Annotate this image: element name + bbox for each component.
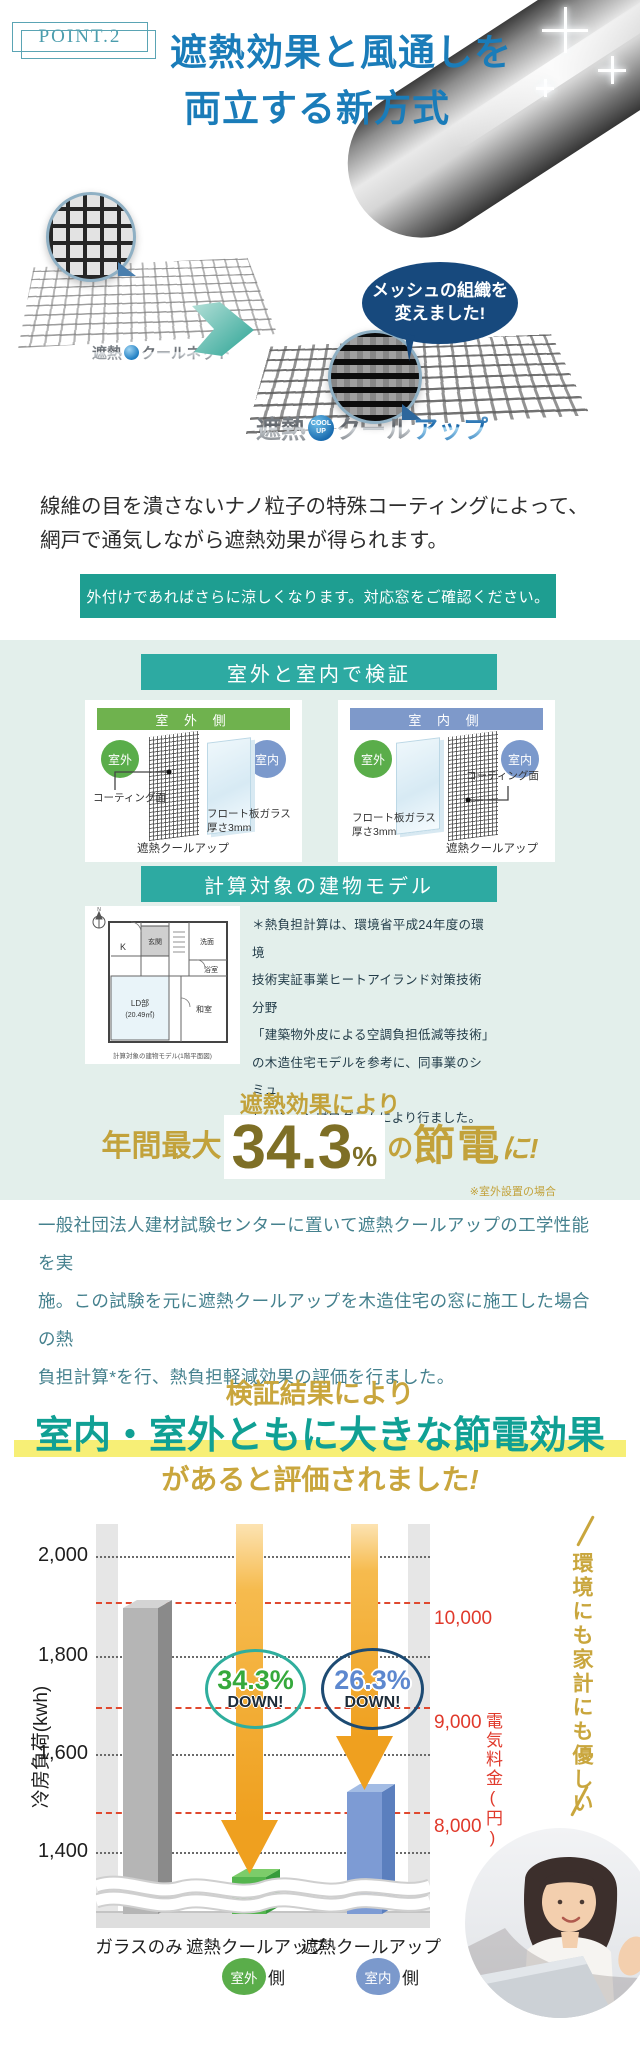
reduction-badge-outdoor: 34.3% DOWN! [205,1649,306,1729]
savings-value-box: 34.3 % [224,1115,386,1179]
coolup-logo-text-2: クール [336,410,411,446]
chart-floor [96,1912,430,1928]
compass-label: N [97,907,101,913]
room-genkan: 玄関 [148,937,162,946]
right-tick-10000: 10,000 [434,1608,492,1630]
coating-label: コーティング面 [93,792,166,806]
coolup-badge-icon: COOL UP [308,415,334,441]
notice-banner: 外付けであればさらに涼しくなります。対応窓をご確認ください。 [80,574,556,618]
transition-arrow-icon [190,300,256,358]
note-line: 「建築物外皮による空調負担低減等技術」 [252,1022,492,1050]
reduction-badge-indoor: 26.3% DOWN! [321,1648,424,1730]
glass-label: フロート板ガラス 厚さ3mm [207,808,291,835]
woman-photo [465,1828,640,2018]
coating-label: コーティング面 [466,770,539,784]
coolup-badge-line1: COOL [311,420,331,428]
droplet-icon [124,345,139,360]
conclusion-bang: ! [469,1464,478,1495]
outdoor-circle: 室外 [354,740,392,778]
savings-line: 年間最大 34.3 % の 節電 に! [0,1112,640,1179]
left-tick-1600: 1,600 [18,1742,88,1765]
room-yokushitsu: 浴室 [204,965,218,974]
verification-header: 室外と室内で検証 [141,654,497,690]
bubble-text-line1: メッシュの組織を [372,280,508,303]
indoor-badge: 室内 [356,1958,400,1995]
description-line: 施。この試験を元に遮熱クールアップを木造住宅の窓に施工した場合の熱 [38,1282,606,1358]
left-tick-1400: 1,400 [18,1840,88,1863]
promo-page: POINT.2 遮熱効果と風通しを 両立する新方式 遮熱 クールネット メッシュ… [0,0,640,2048]
product-label: 遮熱クールアップ [446,842,538,857]
savings-unit: % [352,1141,377,1179]
point-label: POINT.2 [39,26,122,48]
intro-line1: 線維の目を潰さないナノ粒子の特殊コーティングによって、 [40,490,612,524]
savings-value: 34.3 [232,1117,353,1179]
outdoor-badge-suffix: 側 [268,1964,285,1989]
right-tick-9000: 9,000 [434,1712,482,1734]
reduction-caption: DOWN! [345,1695,401,1712]
reduction-percent: 34.3% [217,1666,294,1694]
reduction-percent: 26.3% [334,1666,411,1694]
description-line: 一般社団法人建材試験センターに置いて遮熱クールアップの工学性能を実 [38,1206,606,1282]
left-tick-1800: 1,800 [18,1644,88,1667]
woman-illustration [465,1828,640,2018]
coolup-logo-text-3: アップ [413,410,488,446]
savings-note: ※室外設置の場合 [0,1183,556,1199]
right-axis-label: 電気料金(円) [480,1712,505,1849]
glass-label: フロート板ガラス 厚さ3mm [352,812,436,839]
coolup-logo: 遮熱 COOL UP クール アップ [256,410,488,446]
description-paragraph: 一般社団法人建材試験センターに置いて遮熱クールアップの工学性能を実 施。この試験… [38,1206,606,1396]
savings-tail: に! [501,1127,538,1179]
room-k: K [120,942,126,952]
left-tick-2000: 2,000 [18,1544,88,1567]
coolup-badge-line2: UP [316,428,326,436]
outdoor-card: 室 外 側 室外 室内 コーティング面 フロート板ガラス 厚さ3mm 遮熱クール… [85,700,302,862]
coolup-logo-text-1: 遮熱 [256,410,306,446]
coating-pointer-line [460,782,530,810]
conclusion-line2: 室内・室外ともに大きな節電効果 [0,1404,640,1459]
floorplan-drawing: N K 玄関 洗面 [85,906,240,1048]
chart-side-note: 環境にも家計にも優しい [566,1552,596,1816]
bubble-text-line2: 変えました! [395,303,486,326]
right-tick-8000: 8,000 [434,1816,482,1838]
intro-line2: 網戸で通気しながら遮熱効果が得られます。 [40,524,612,558]
axis-break-wave [96,1883,430,1906]
savings-mid: の [387,1128,413,1179]
outdoor-card-title: 室 外 側 [97,708,290,730]
glass-label-line2: 厚さ3mm [352,826,436,840]
coating-pointer-line [111,766,177,792]
glass-label-line1: フロート板ガラス [207,808,291,822]
conclusion-line3-text: があると評価されました [161,1464,469,1495]
indoor-card-title: 室 内 側 [350,708,543,730]
glass-label-line1: フロート板ガラス [352,812,436,826]
room-senmen: 洗面 [200,937,214,946]
room-ld-area: (20.49㎡) [125,1011,154,1019]
category-coolup-indoor: 遮熱クールアップ [288,1934,454,1959]
page-title-line2: 両立する新方式 [184,90,450,127]
note-line: ＊熱負担計算は、環境省平成24年度の環境 [252,912,492,967]
floorplan-caption: 計算対象の建物モデル(1階平面図) [85,1050,240,1060]
conclusion-line3: があると評価されました! [0,1458,640,1498]
indoor-card: 室 内 側 室外 室内 コーティング面 フロート板ガラス 厚さ3mm 遮熱クール… [338,700,555,862]
indoor-badge-suffix: 側 [402,1964,419,1989]
page-title-line1: 遮熱効果と風通しを [170,34,512,71]
note-line: 技術実証事業ヒートアイランド対策技術分野 [252,967,492,1022]
room-ld: LD部 [131,998,149,1008]
product-label: 遮熱クールアップ [137,842,229,857]
room-washitsu: 和室 [196,1004,212,1014]
savings-prefix: 年間最大 [102,1121,222,1179]
glass-label-line2: 厚さ3mm [207,822,291,836]
coolnet-logo-text-1: 遮熱 [92,342,122,363]
reduction-caption: DOWN! [228,1695,284,1712]
building-model-header: 計算対象の建物モデル [141,866,497,902]
bar-glass-only [123,1600,172,1914]
outdoor-badge: 室外 [222,1958,266,1995]
indoor-circle: 室内 [248,740,286,778]
point-badge: POINT.2 [12,22,148,52]
intro-paragraph: 線維の目を潰さないナノ粒子の特殊コーティングによって、 網戸で通気しながら遮熱効… [40,490,612,558]
savings-emphasis: 節電 [413,1112,501,1179]
floorplan: N K 玄関 洗面 [85,906,240,1064]
speech-bubble: メッシュの組織を 変えました! [362,262,518,344]
magnifier-pointer [118,262,136,276]
decorative-slash [576,1515,595,1546]
